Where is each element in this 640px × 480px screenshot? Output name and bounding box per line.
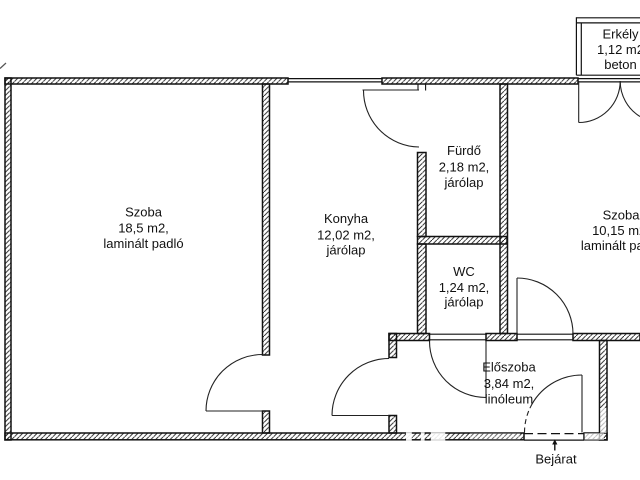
svg-text:Bejárat: Bejárat — [535, 452, 577, 467]
svg-text:beton: beton — [604, 57, 637, 72]
svg-text:2,18 m2,: 2,18 m2, — [439, 160, 490, 175]
svg-text:Erkély: Erkély — [602, 26, 639, 41]
svg-text:Előszoba: Előszoba — [482, 360, 536, 375]
svg-text:járólap: járólap — [325, 243, 365, 258]
svg-text:Szoba: Szoba — [125, 205, 163, 220]
svg-text:laminált padló: laminált padló — [103, 236, 183, 251]
svg-text:1,24 m2,: 1,24 m2, — [439, 280, 490, 295]
svg-text:12,02 m2,: 12,02 m2, — [317, 228, 375, 243]
svg-text:1,12 m2: 1,12 m2 — [597, 42, 640, 57]
svg-text:laminált padló: laminált padló — [581, 238, 640, 253]
svg-text:WC: WC — [453, 264, 475, 279]
svg-text:3,84 m2,: 3,84 m2, — [484, 376, 535, 391]
svg-text:Konyha: Konyha — [324, 211, 369, 226]
svg-text:Fürdő: Fürdő — [447, 143, 481, 158]
svg-text:járólap: járólap — [443, 295, 483, 310]
svg-text:Szoba: Szoba — [603, 207, 640, 222]
svg-text:járólap: járólap — [443, 175, 483, 190]
svg-text:linóleum: linóleum — [485, 391, 533, 406]
svg-text:10,15 m2,: 10,15 m2, — [592, 223, 640, 238]
svg-text:18,5 m2,: 18,5 m2, — [118, 221, 169, 236]
